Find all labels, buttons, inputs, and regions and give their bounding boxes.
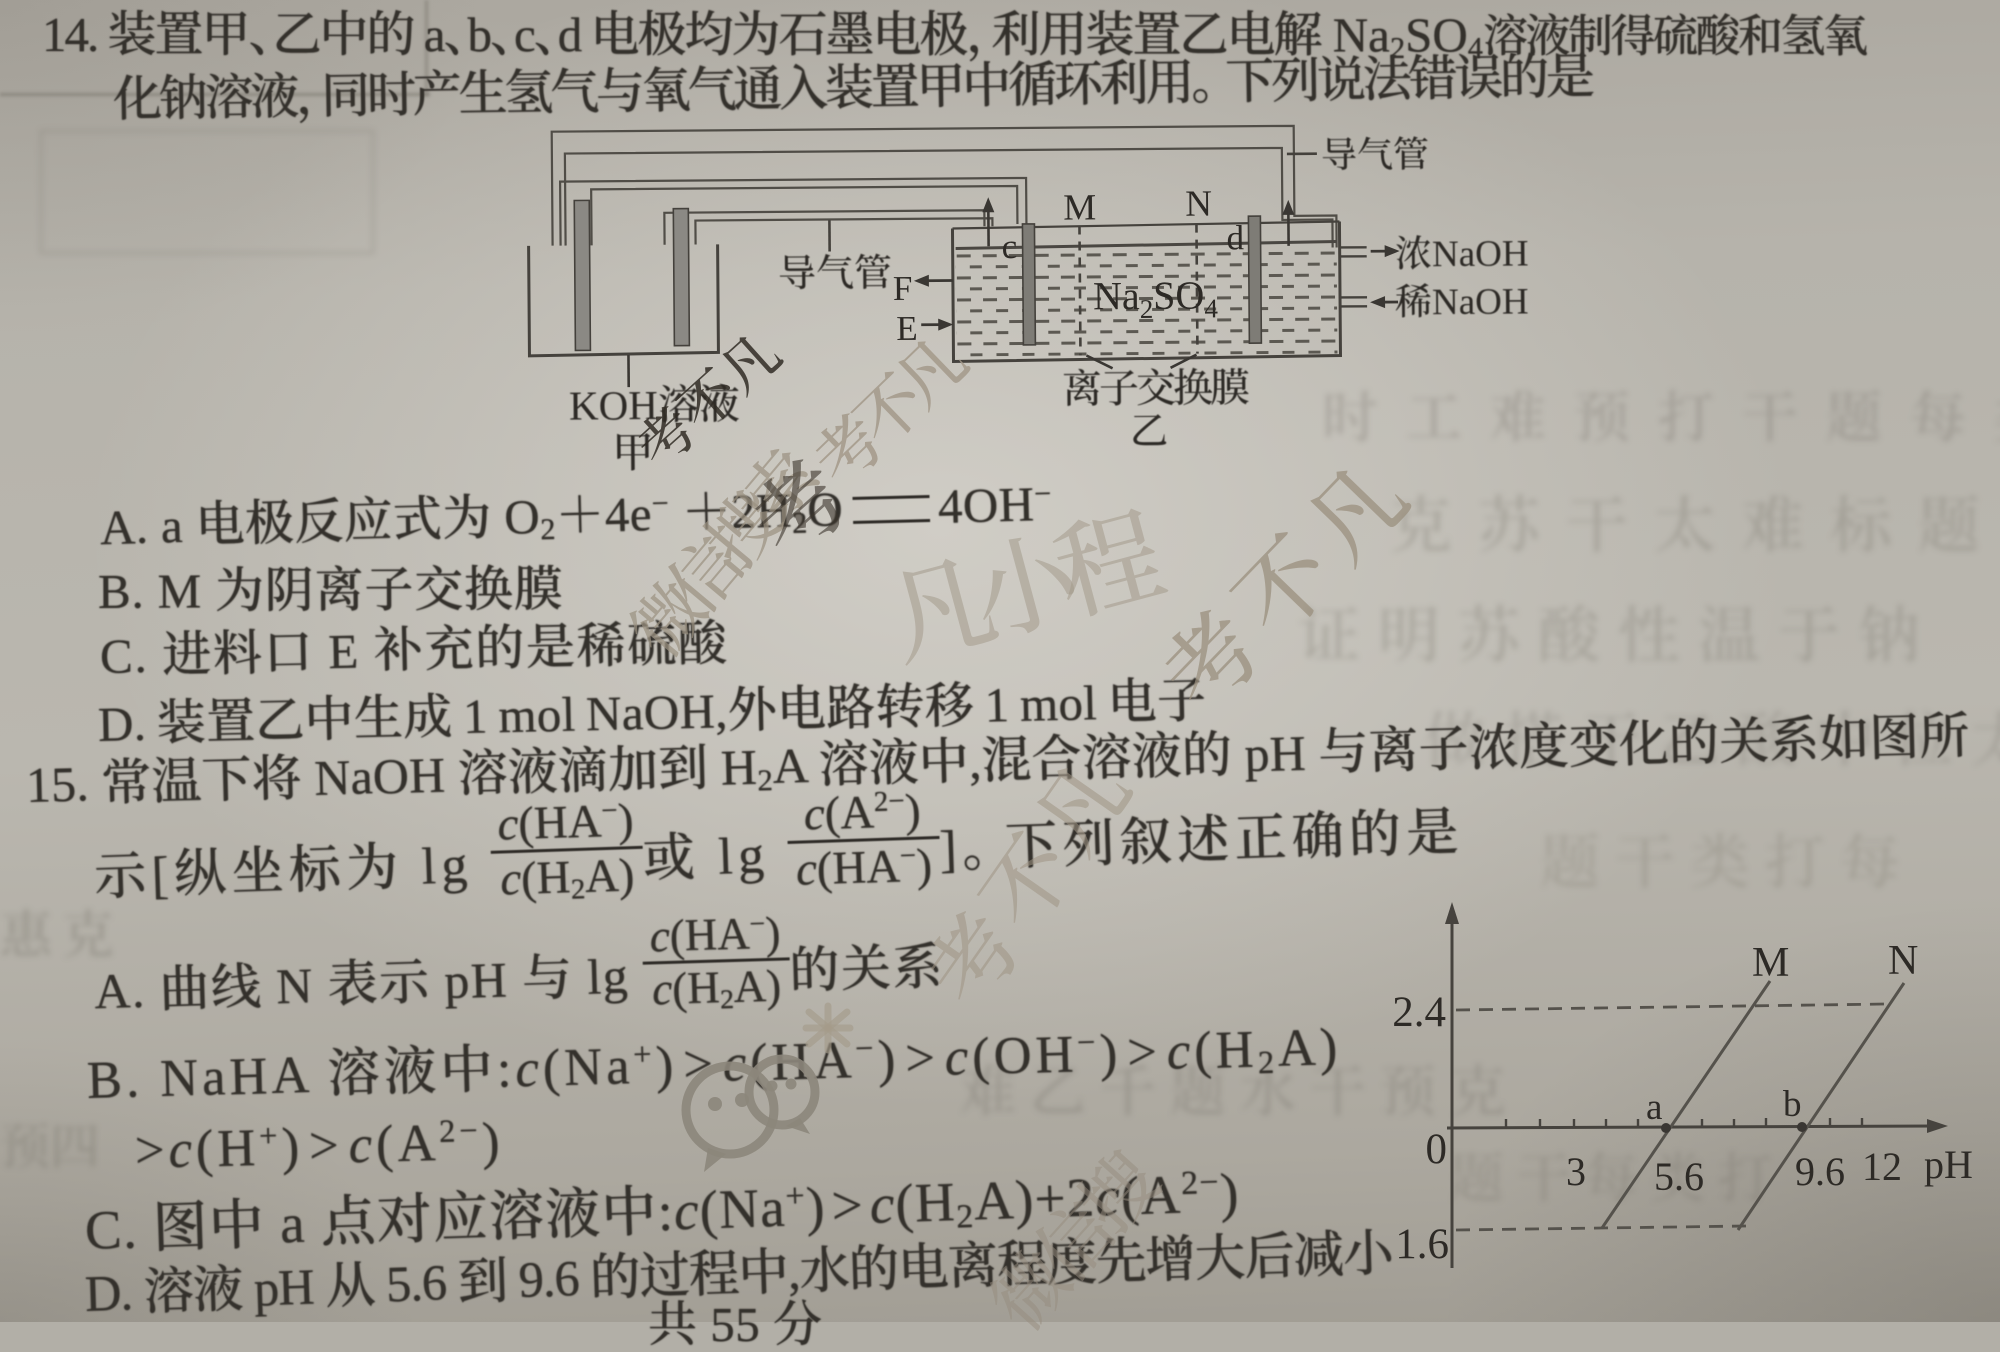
svg-text:5.6: 5.6 (1654, 1154, 1704, 1199)
svg-text:2.4: 2.4 (1392, 989, 1446, 1036)
svg-text:3: 3 (1566, 1149, 1586, 1194)
svg-text:b: b (1783, 1084, 1802, 1125)
svg-text:a: a (1646, 1087, 1662, 1128)
svg-text:pH: pH (1924, 1142, 1973, 1187)
svg-text:1.6: 1.6 (1395, 1221, 1449, 1268)
svg-text:N: N (1888, 938, 1918, 984)
svg-text:Na2SO4: Na2SO4 (1093, 272, 1219, 324)
svg-text:0: 0 (1426, 1126, 1448, 1173)
svg-text:12: 12 (1862, 1144, 1902, 1189)
svg-text:N: N (1185, 183, 1212, 224)
svg-text:9.6: 9.6 (1795, 1149, 1845, 1194)
svg-text:F: F (893, 269, 913, 308)
svg-text:c: c (1001, 227, 1017, 266)
svg-text:M: M (1063, 187, 1096, 228)
svg-text:M: M (1752, 940, 1789, 986)
svg-text:d: d (1226, 218, 1244, 257)
